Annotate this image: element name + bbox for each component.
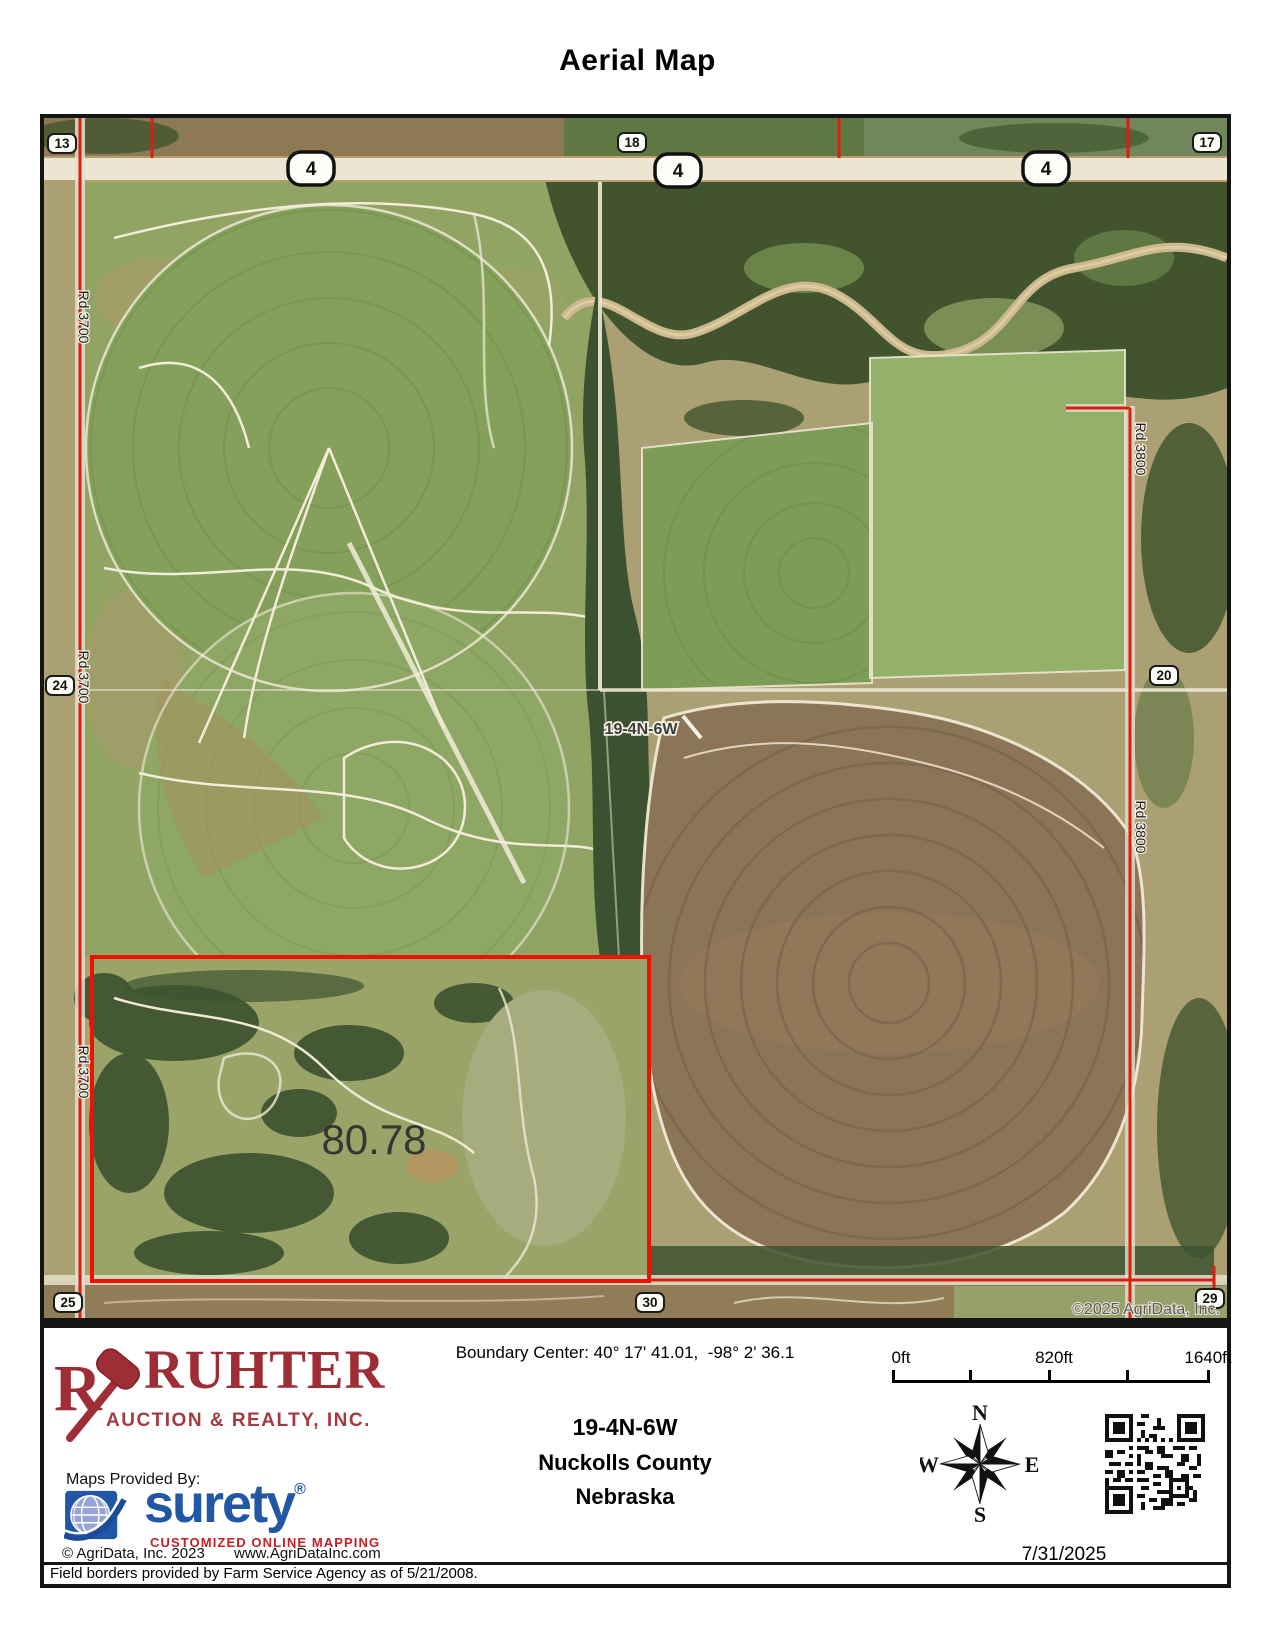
qr-code [1105, 1414, 1205, 1514]
boundary-center-text: Boundary Center: 40° 17' 41.01, -98° 2' … [375, 1343, 875, 1363]
svg-text:R: R [54, 1352, 103, 1425]
compass-rose: N E S W [920, 1400, 1040, 1524]
scale-tick [1048, 1370, 1051, 1381]
company-name: RUHTER [144, 1342, 385, 1397]
page-title: Aerial Map [0, 44, 1275, 78]
surety-wordmark-row: surety® [144, 1480, 306, 1529]
section-badge-20: 20 [1150, 666, 1178, 685]
road-label-rd3700: Rd 3700 [76, 1046, 92, 1099]
surety-registered-mark: ® [294, 1481, 306, 1498]
svg-text:20: 20 [1156, 668, 1171, 683]
terrain [44, 118, 1227, 1318]
scale-tick [892, 1370, 895, 1381]
road-label-rd3700: Rd 3700 [76, 651, 92, 704]
svg-text:4: 4 [306, 159, 317, 180]
acreage-label: 80.78 [321, 1116, 426, 1163]
surety-wordmark: surety [144, 1474, 294, 1534]
svg-text:17: 17 [1199, 135, 1214, 150]
highway-4-shield: 4 [288, 152, 334, 185]
aerial-map-page: Aerial Map [0, 0, 1275, 1650]
map-watermark: ©2025 AgriData, Inc. [1072, 1301, 1220, 1318]
section-badge-13: 13 [48, 134, 76, 153]
svg-text:25: 25 [60, 1295, 76, 1310]
scale-label-820ft: 820ft [1035, 1348, 1073, 1368]
compass-s: S [974, 1502, 986, 1524]
svg-text:24: 24 [52, 678, 68, 693]
highway-4-shield: 4 [655, 154, 701, 187]
scale-tick [1207, 1370, 1210, 1381]
surety-globe-icon [64, 1488, 128, 1544]
scale-tick [1126, 1370, 1129, 1381]
field-borders-note: Field borders provided by Farm Service A… [44, 1562, 1227, 1584]
compass-star [940, 1424, 1020, 1504]
township-label: 19-4N-6W [605, 721, 679, 738]
county-name: Nuckolls County [375, 1450, 875, 1476]
road-label-rd3800: Rd 3800 [1133, 801, 1149, 854]
section-badge-17: 17 [1193, 133, 1221, 152]
compass-e: E [1025, 1452, 1040, 1477]
compass-w: W [920, 1452, 939, 1477]
svg-text:30: 30 [642, 1295, 657, 1310]
svg-text:4: 4 [673, 161, 684, 182]
svg-text:18: 18 [624, 135, 640, 150]
scale-tick [969, 1370, 972, 1381]
scale-label-0ft: 0ft [892, 1348, 911, 1368]
scale-label-1640ft: 1640ft [1184, 1348, 1231, 1368]
svg-text:13: 13 [54, 136, 70, 151]
section-badge-24: 24 [46, 676, 74, 695]
agridata-url: www.AgriDataInc.com [234, 1545, 381, 1562]
township-range: 19-4N-6W [375, 1414, 875, 1441]
highway-4-shield: 4 [1023, 152, 1069, 185]
section-badge-30: 30 [636, 1293, 664, 1312]
aerial-photo: 13 18 17 24 20 25 30 [44, 118, 1227, 1318]
scale-bar [892, 1370, 1210, 1383]
agridata-copyright: © AgriData, Inc. 2023 [62, 1545, 205, 1562]
road-label-rd3700: Rd 3700 [76, 291, 92, 344]
svg-text:4: 4 [1041, 159, 1052, 180]
state-name: Nebraska [375, 1484, 875, 1510]
footer: R RUHTER AUCTION & REALTY, INC. Maps Pro… [40, 1322, 1231, 1588]
map-frame: 13 18 17 24 20 25 30 [40, 114, 1231, 1322]
compass-n: N [972, 1400, 988, 1425]
section-badge-25: 25 [54, 1293, 82, 1312]
location-block: Boundary Center: 40° 17' 41.01, -98° 2' … [375, 1328, 875, 1528]
section-badge-18: 18 [618, 133, 646, 152]
company-subtitle: AUCTION & REALTY, INC. [106, 1410, 371, 1432]
road-label-rd3800: Rd 3800 [1133, 423, 1149, 476]
